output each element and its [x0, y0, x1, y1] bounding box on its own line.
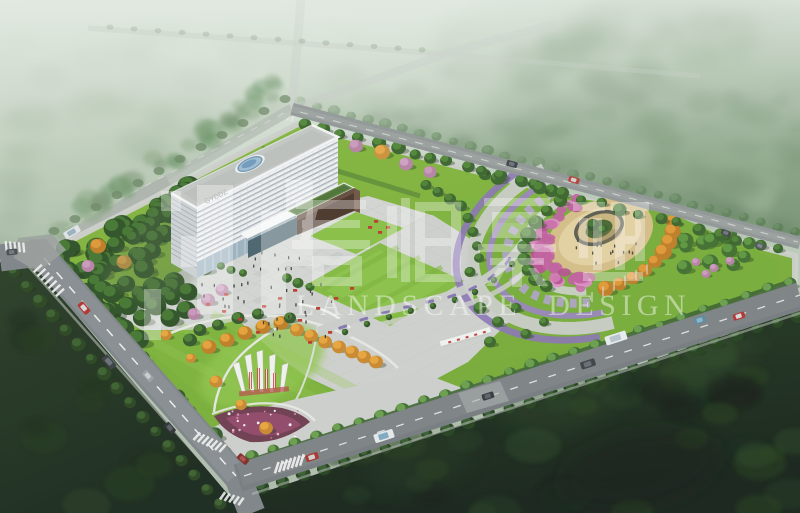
- svg-text:LANDSCAPE DESIGN: LANDSCAPE DESIGN: [296, 289, 691, 322]
